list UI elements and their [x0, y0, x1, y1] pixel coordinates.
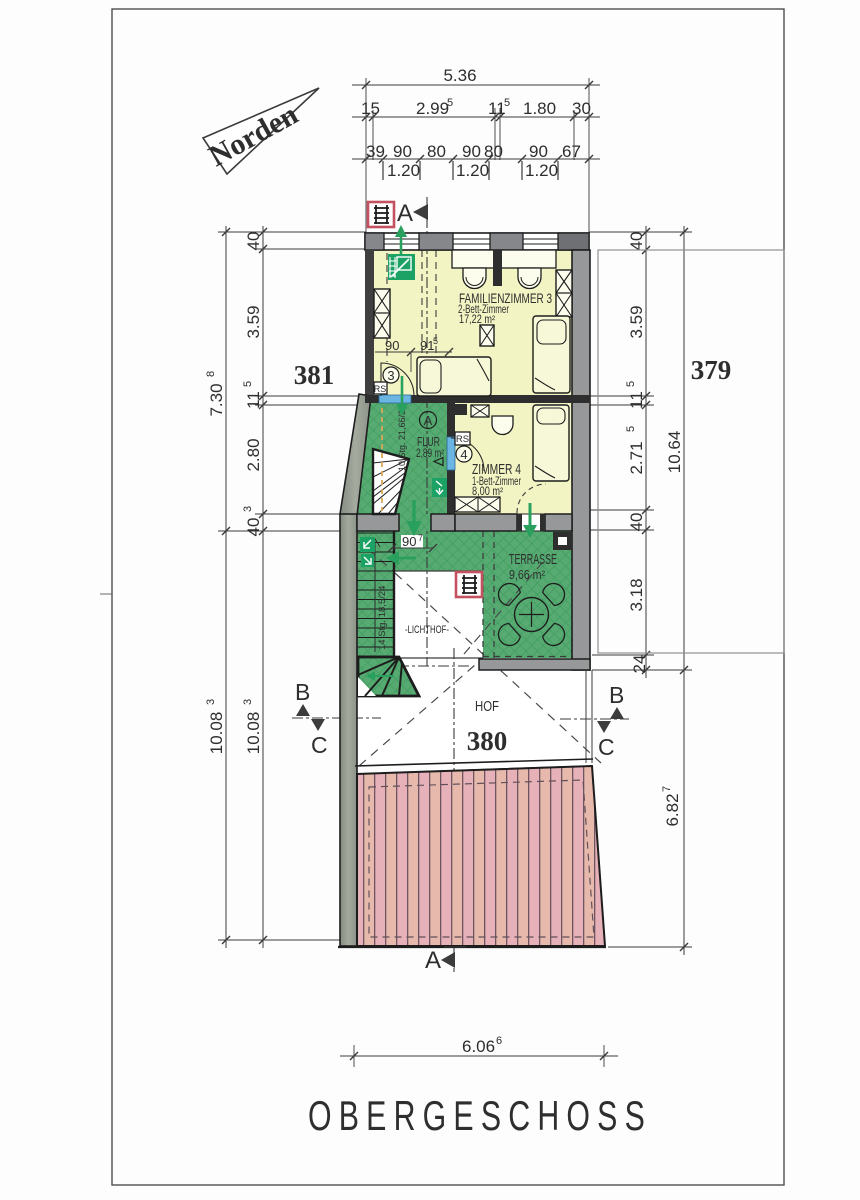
svg-text:10.08: 10.08 — [244, 712, 263, 755]
svg-text:40: 40 — [244, 232, 263, 251]
svg-text:30: 30 — [572, 99, 591, 118]
svg-text:5: 5 — [242, 381, 254, 387]
svg-text:4: 4 — [460, 447, 467, 462]
svg-text:5.36: 5.36 — [443, 66, 476, 85]
svg-text:80: 80 — [484, 142, 503, 161]
svg-text:3.59: 3.59 — [244, 305, 263, 338]
svg-text:RS: RS — [456, 434, 469, 445]
svg-text:1.20: 1.20 — [456, 161, 489, 180]
svg-text:-LICHTHOF-: -LICHTHOF- — [405, 624, 449, 636]
svg-text:6: 6 — [496, 1035, 502, 1047]
svg-text:11: 11 — [244, 391, 263, 409]
svg-text:A: A — [424, 413, 433, 428]
svg-text:B: B — [609, 682, 624, 708]
svg-text:10.64: 10.64 — [665, 431, 684, 474]
svg-text:3: 3 — [205, 699, 217, 705]
svg-text:24: 24 — [630, 655, 649, 674]
svg-text:B: B — [295, 679, 310, 705]
svg-text:5: 5 — [625, 381, 637, 387]
svg-text:5: 5 — [433, 336, 438, 346]
svg-text:TERRASSE: TERRASSE — [509, 551, 557, 568]
svg-text:1.80: 1.80 — [523, 99, 556, 118]
svg-text:14 Stg. 18,5/24: 14 Stg. 18,5/24 — [377, 586, 388, 650]
svg-text:11: 11 — [488, 99, 506, 118]
svg-text:11: 11 — [627, 391, 646, 409]
svg-text:8: 8 — [205, 371, 217, 377]
svg-text:2.80: 2.80 — [244, 438, 263, 471]
svg-text:8,00 m²: 8,00 m² — [472, 486, 503, 498]
svg-text:40: 40 — [627, 513, 646, 532]
svg-text:40: 40 — [244, 518, 263, 537]
svg-text:90: 90 — [462, 142, 481, 161]
svg-text:381: 381 — [294, 360, 335, 390]
svg-text:9,66 m²: 9,66 m² — [509, 567, 546, 582]
svg-text:3.59: 3.59 — [627, 305, 646, 338]
svg-text:3: 3 — [242, 506, 254, 512]
svg-text:379: 379 — [691, 355, 732, 385]
svg-text:C: C — [311, 732, 328, 758]
svg-text:5: 5 — [625, 426, 637, 432]
svg-text:3: 3 — [242, 699, 254, 705]
svg-text:C: C — [598, 734, 615, 760]
svg-text:80: 80 — [427, 142, 446, 161]
svg-text:90: 90 — [529, 142, 548, 161]
svg-text:HOF: HOF — [475, 698, 499, 715]
svg-text:RS: RS — [374, 384, 387, 394]
svg-text:2.71: 2.71 — [627, 441, 646, 474]
svg-text:39: 39 — [366, 142, 385, 161]
svg-text:40: 40 — [627, 232, 646, 251]
svg-text:1.20: 1.20 — [387, 161, 420, 180]
svg-text:1.20: 1.20 — [525, 161, 558, 180]
svg-text:OBERGESCHOSS: OBERGESCHOSS — [308, 1092, 652, 1139]
svg-text:3: 3 — [387, 368, 394, 383]
svg-text:2.99: 2.99 — [416, 99, 449, 118]
svg-text:7: 7 — [418, 533, 423, 543]
svg-text:5: 5 — [504, 97, 510, 109]
svg-text:10.08: 10.08 — [207, 712, 226, 755]
svg-text:380: 380 — [467, 726, 508, 756]
svg-text:3.18: 3.18 — [627, 578, 646, 611]
svg-text:5: 5 — [447, 97, 453, 109]
svg-text:6.06: 6.06 — [462, 1037, 495, 1056]
svg-text:2,89 m²: 2,89 m² — [416, 448, 444, 460]
svg-text:15: 15 — [361, 99, 380, 118]
svg-text:7.30: 7.30 — [207, 383, 226, 416]
svg-text:90: 90 — [393, 142, 412, 161]
svg-text:6.82: 6.82 — [663, 793, 682, 826]
svg-text:FLUR: FLUR — [417, 435, 440, 449]
svg-text:17,22 m²: 17,22 m² — [459, 314, 495, 326]
svg-text:A: A — [397, 200, 413, 227]
svg-text:90: 90 — [385, 338, 399, 353]
svg-text:67: 67 — [562, 142, 581, 161]
svg-text:90: 90 — [402, 534, 416, 549]
svg-text:7: 7 — [661, 786, 673, 792]
svg-text:A: A — [425, 947, 441, 974]
